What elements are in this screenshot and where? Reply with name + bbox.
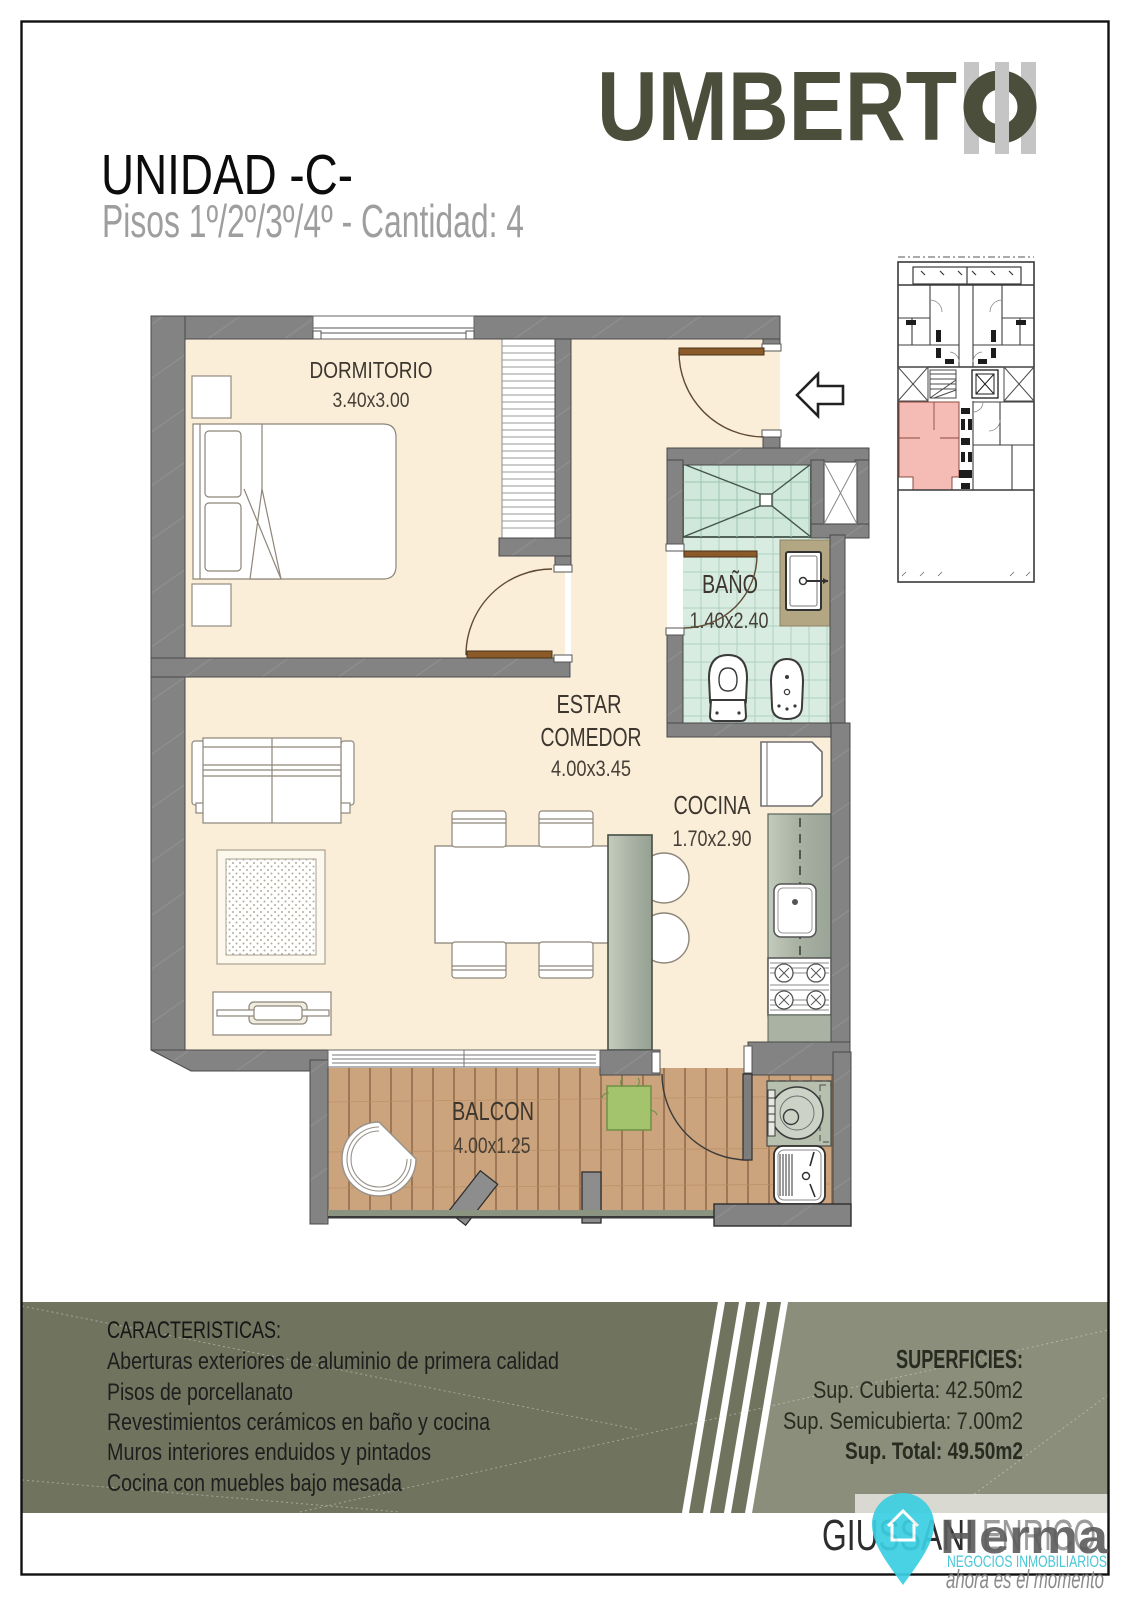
svg-text:Revestimientos cerámicos en ba: Revestimientos cerámicos en baño y cocin… <box>107 1409 490 1436</box>
svg-text:COMEDOR: COMEDOR <box>541 722 642 752</box>
svg-text:Pisos 1º/2º/3º/4º - Cantidad:: Pisos 1º/2º/3º/4º - Cantidad: 4 <box>102 195 524 247</box>
svg-text:ahora es el momento: ahora es el momento <box>946 1564 1104 1594</box>
svg-text:4.00x3.45: 4.00x3.45 <box>551 756 631 781</box>
svg-text:1.70x2.90: 1.70x2.90 <box>673 826 752 851</box>
svg-text:BAÑO: BAÑO <box>702 569 758 599</box>
svg-text:Sup. Semicubierta: 7.00m2: Sup. Semicubierta: 7.00m2 <box>783 1408 1023 1435</box>
svg-text:Sup. Total: 49.50m2: Sup. Total: 49.50m2 <box>845 1438 1023 1465</box>
svg-text:COCINA: COCINA <box>674 790 751 820</box>
svg-text:3.40x3.00: 3.40x3.00 <box>333 389 410 412</box>
svg-text:SUPERFICIES:: SUPERFICIES: <box>896 1344 1023 1374</box>
svg-text:CARACTERISTICAS:: CARACTERISTICAS: <box>107 1317 281 1344</box>
svg-text:BALCON: BALCON <box>452 1096 534 1126</box>
svg-text:Cocina con muebles bajo mesada: Cocina con muebles bajo mesada <box>107 1470 402 1497</box>
svg-text:Aberturas exteriores de alumin: Aberturas exteriores de aluminio de prim… <box>107 1348 559 1375</box>
svg-text:Sup. Cubierta: 42.50m2: Sup. Cubierta: 42.50m2 <box>813 1377 1023 1404</box>
svg-text:Pisos de porcellanato: Pisos de porcellanato <box>107 1379 293 1406</box>
svg-text:ESTAR: ESTAR <box>557 689 622 719</box>
svg-text:Muros interiores enduidos y pi: Muros interiores enduidos y pintados <box>107 1439 431 1466</box>
svg-text:UMBERT: UMBERT <box>597 51 957 161</box>
svg-text:DORMITORIO: DORMITORIO <box>310 357 433 383</box>
svg-text:4.00x1.25: 4.00x1.25 <box>454 1133 531 1158</box>
